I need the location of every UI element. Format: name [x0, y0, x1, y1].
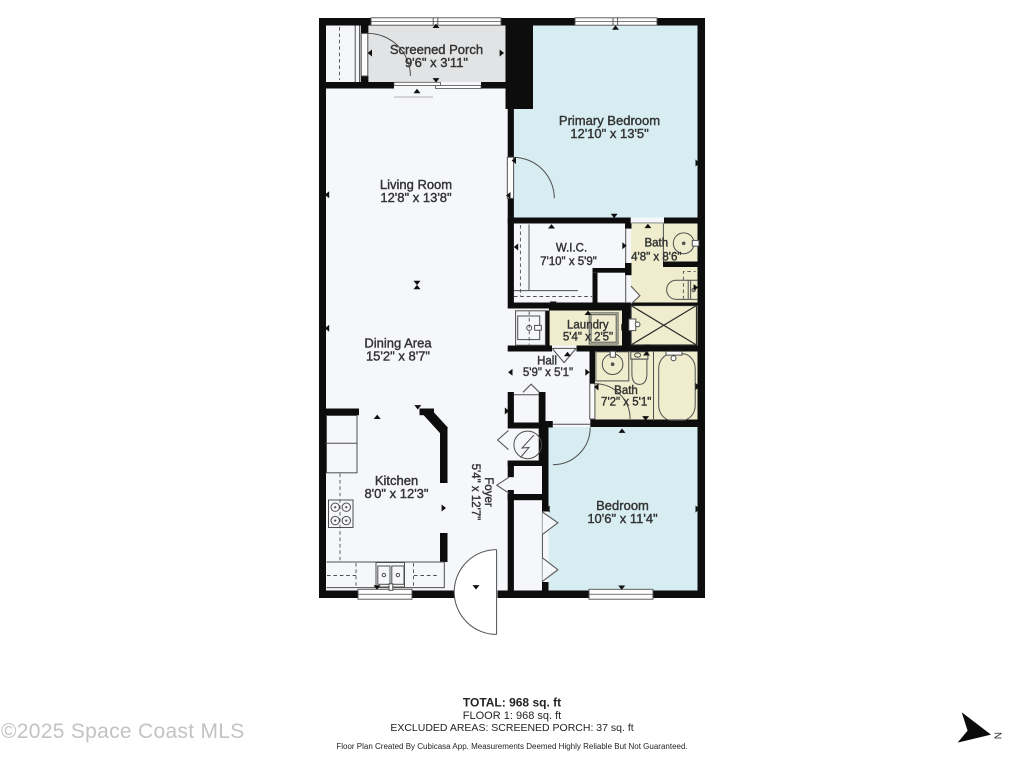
- svg-text:7'2" x 5'1": 7'2" x 5'1": [601, 397, 651, 409]
- svg-text:Bath: Bath: [644, 238, 668, 250]
- svg-text:FLOOR 1: 968 sq. ft: FLOOR 1: 968 sq. ft: [463, 710, 561, 722]
- svg-text:5'4" x 2'5": 5'4" x 2'5": [563, 332, 613, 344]
- svg-text:EXCLUDED AREAS: SCREENED PORCH: EXCLUDED AREAS: SCREENED PORCH: 37 sq. f…: [390, 722, 633, 734]
- svg-text:N: N: [991, 732, 1002, 739]
- svg-text:Laundry: Laundry: [567, 319, 609, 331]
- svg-text:5'9" x 5'1": 5'9" x 5'1": [523, 367, 573, 379]
- svg-text:Floor Plan Created By Cubicasa: Floor Plan Created By Cubicasa App. Meas…: [336, 742, 687, 751]
- svg-text:Hall: Hall: [537, 356, 557, 368]
- svg-text:W.I.C.: W.I.C.: [556, 243, 587, 255]
- svg-text:12'8" x 13'8": 12'8" x 13'8": [380, 190, 452, 205]
- svg-text:Bath: Bath: [614, 385, 638, 397]
- svg-text:TOTAL: 968 sq. ft: TOTAL: 968 sq. ft: [463, 695, 561, 709]
- svg-text:4'8" x 8'6": 4'8" x 8'6": [631, 251, 681, 263]
- svg-text:9'6" x 3'11": 9'6" x 3'11": [405, 55, 468, 70]
- svg-text:5'4" x 12'7": 5'4" x 12'7": [469, 464, 481, 521]
- svg-text:10'6" x 11'4": 10'6" x 11'4": [587, 511, 658, 526]
- svg-text:12'10" x 13'5": 12'10" x 13'5": [570, 126, 649, 141]
- svg-text:7'10" x 5'9": 7'10" x 5'9": [540, 256, 597, 268]
- svg-text:8'0" x 12'3": 8'0" x 12'3": [364, 486, 428, 501]
- svg-text:15'2" x 8'7": 15'2" x 8'7": [366, 348, 430, 363]
- svg-text:Foyer: Foyer: [482, 477, 494, 507]
